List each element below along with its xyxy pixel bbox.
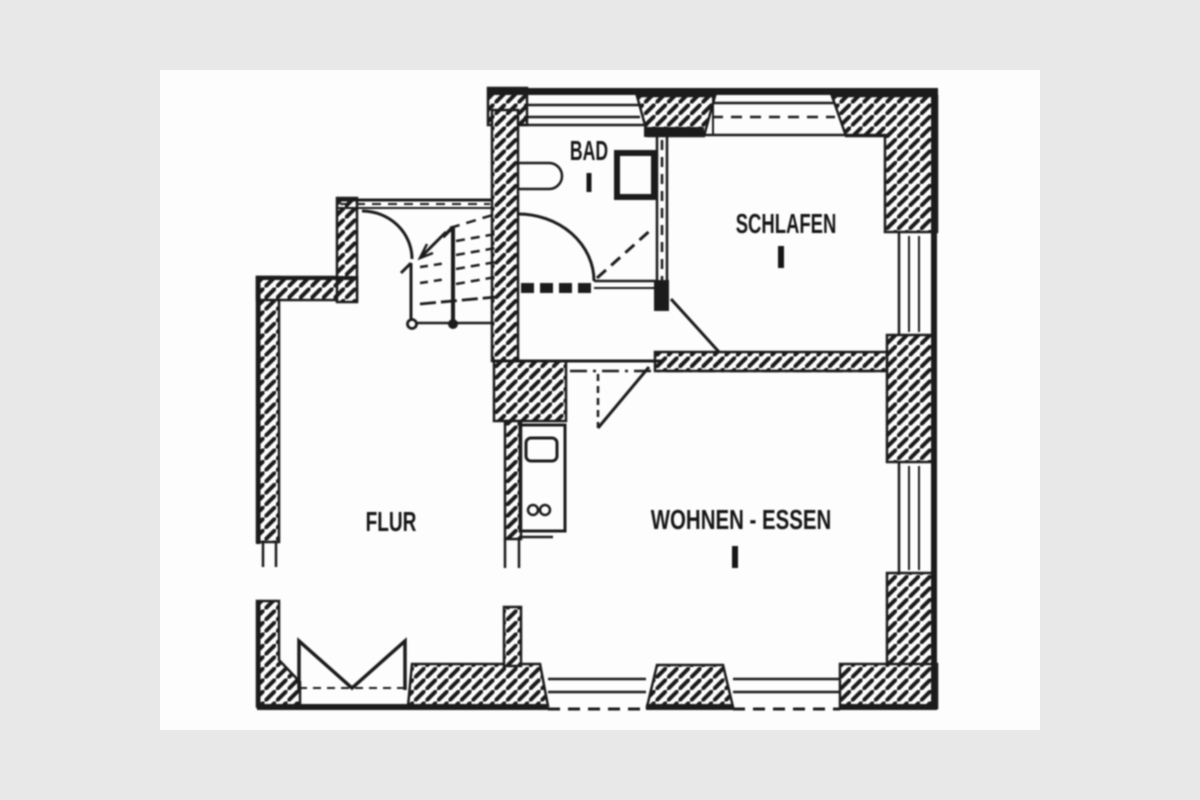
svg-text:BAD: BAD	[570, 135, 608, 166]
svg-text:SCHLAFEN: SCHLAFEN	[736, 209, 837, 240]
svg-text:WOHNEN - ESSEN: WOHNEN - ESSEN	[651, 505, 831, 536]
svg-text:FLUR: FLUR	[366, 506, 417, 538]
